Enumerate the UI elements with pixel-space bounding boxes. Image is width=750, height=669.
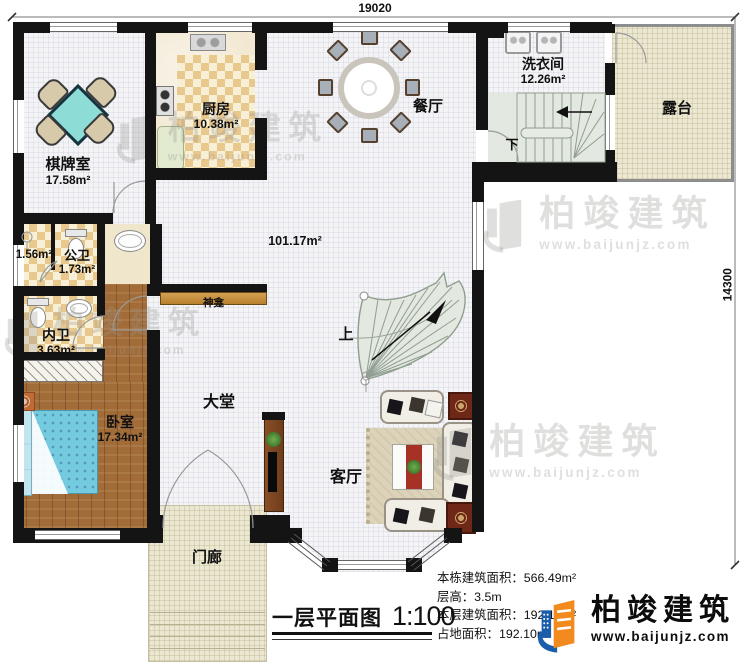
room-label-inner-bath: 内卫 3.63m² (14, 328, 98, 357)
sofa-cushion (452, 431, 469, 448)
wall-segment (472, 182, 484, 202)
room-label-chess: 棋牌室 17.58m² (18, 157, 118, 187)
wall-segment (155, 168, 267, 180)
plan-title: 一层平面图 (272, 602, 382, 632)
tv (268, 452, 277, 492)
brand-url: www.baijunjz.com (591, 629, 735, 644)
room-label-kitchen: 厨房 10.38m² (166, 102, 266, 131)
coffee-table (392, 444, 434, 490)
wall-segment (145, 22, 156, 224)
toilet (65, 229, 87, 237)
room-label-laundry: 洗衣间 12.26m² (493, 57, 593, 86)
wall-segment (13, 213, 113, 224)
title-underline (272, 632, 432, 635)
wall-segment (250, 515, 290, 543)
wall-segment (488, 28, 504, 38)
title-block: 一层平面图 1:100 (272, 601, 455, 632)
wall-segment (147, 284, 160, 296)
floor-plan: 柏竣建筑 www.baijunjz.com 柏竣建筑 www.baijunjz.… (0, 0, 750, 669)
dimension-right: 14300 (721, 250, 734, 320)
wall-segment (472, 162, 617, 182)
wall-segment (97, 296, 105, 316)
wall-segment (13, 22, 24, 100)
wall-segment (605, 150, 615, 182)
sofa-cushion (409, 397, 426, 414)
stair-up-label: 上 (331, 327, 361, 344)
wall-segment (472, 270, 484, 532)
window (188, 22, 252, 32)
window (50, 22, 117, 32)
toilet (30, 307, 46, 328)
sofa (384, 498, 450, 532)
washing-machine (536, 31, 562, 54)
room-label-public-bath: 公卫 1.73m² (45, 249, 109, 276)
bedroom-corridor-floor (103, 284, 147, 384)
watermark: 柏竣建筑 www.baijunjz.com (478, 196, 716, 254)
window (508, 22, 570, 32)
chair (405, 79, 420, 96)
sofa-cushion (419, 507, 436, 524)
chair (361, 30, 378, 45)
sofa (380, 390, 444, 424)
sofa-cushion (387, 399, 404, 416)
watermark-url: www.baijunjz.com (489, 465, 665, 480)
wall-segment (322, 558, 338, 572)
title-underline-thin (272, 639, 432, 640)
chair (361, 128, 378, 143)
wall-segment (406, 558, 422, 572)
wall-segment (444, 528, 462, 543)
dimension-right-value: 14300 (720, 268, 734, 301)
dimension-top: 19020 (330, 2, 420, 15)
side-table (448, 392, 474, 420)
plant (266, 432, 281, 447)
window (472, 202, 484, 270)
wall-segment (476, 22, 488, 130)
room-label-living: 客厅 (316, 469, 376, 487)
window (13, 100, 24, 153)
wall-segment (147, 284, 267, 292)
watermark-text: 柏竣建筑 (489, 424, 665, 460)
sofa-cushion (425, 400, 444, 419)
dining-table-center (361, 80, 377, 96)
wall-segment (255, 22, 267, 70)
washing-machine (505, 31, 531, 54)
window (13, 425, 24, 482)
room-label-bedroom: 卧室 17.34m² (70, 415, 170, 444)
window (333, 22, 448, 32)
watermark-url: www.baijunjz.com (539, 237, 715, 252)
shrine-label: 神龛 (160, 293, 267, 311)
brand-logo: 柏竣建筑 www.baijunjz.com (533, 594, 735, 656)
toilet (27, 298, 49, 306)
room-label-lobby: 大堂 (189, 394, 249, 412)
watermark-logo-icon (478, 196, 530, 254)
wall-segment (150, 224, 162, 286)
room-label-porch: 门廊 (177, 550, 237, 567)
wall-segment (288, 528, 302, 543)
wash-basin (66, 299, 92, 318)
hall-area-label: 101.17m² (245, 234, 345, 248)
kitchen-cabinet (157, 126, 184, 170)
room-label-dining: 餐厅 (398, 99, 458, 116)
wash-basin (114, 230, 146, 252)
brand-logo-icon (533, 594, 583, 656)
sofa-cushion (393, 508, 410, 525)
stair-down-label: 下 (498, 138, 526, 153)
window (35, 530, 120, 540)
kitchen-sink (190, 34, 226, 51)
wall-segment (605, 63, 615, 95)
brand-name: 柏竣建筑 (591, 594, 735, 629)
porch-steps (150, 612, 265, 660)
sofa-cushion (452, 483, 469, 500)
wardrobe (16, 360, 103, 382)
watermark-text: 柏竣建筑 (539, 196, 715, 232)
room-label-terrace: 露台 (646, 101, 708, 118)
wall-segment (605, 24, 615, 33)
window (338, 560, 406, 570)
sofa-cushion (453, 457, 470, 474)
dimension-top-value: 19020 (358, 1, 391, 15)
wall-segment (13, 286, 105, 296)
chair (318, 79, 333, 96)
wall-segment (262, 412, 285, 420)
window (605, 95, 615, 150)
stat-row: 本栋建筑面积：566.49m² (437, 569, 576, 588)
plant (407, 460, 421, 474)
wall-segment (148, 515, 163, 543)
